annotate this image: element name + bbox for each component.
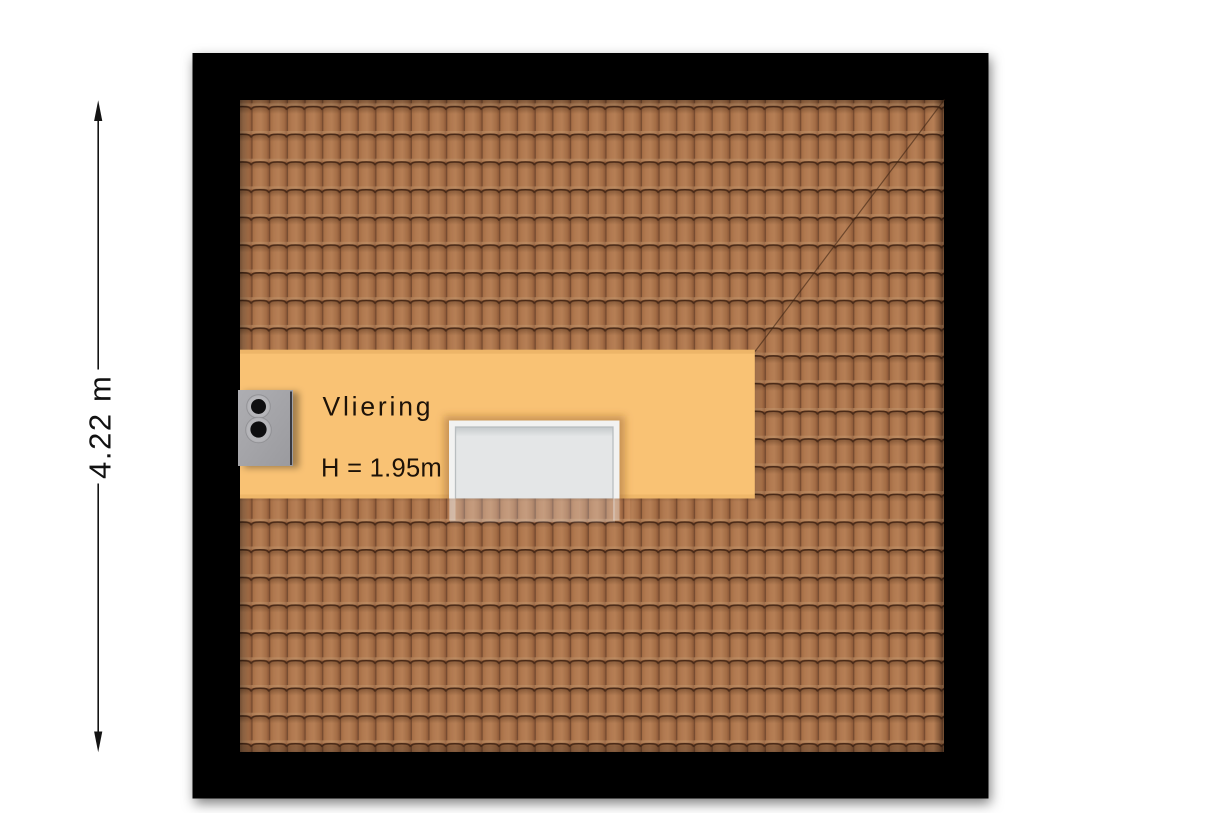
svg-text:H = 1.95m: H = 1.95m: [321, 455, 442, 483]
svg-text:Vliering: Vliering: [323, 392, 434, 422]
svg-text:4.22 m: 4.22 m: [82, 375, 117, 479]
